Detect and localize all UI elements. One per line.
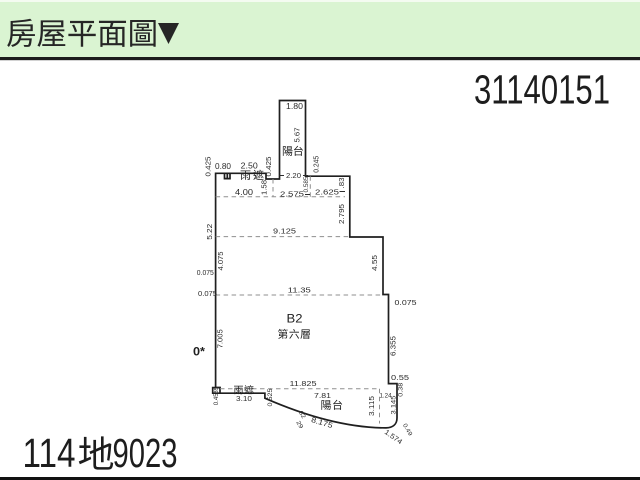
svg-text:114: 114: [23, 430, 76, 476]
svg-text:3.115: 3.115: [369, 396, 376, 416]
svg-text:31140151: 31140151: [474, 67, 610, 113]
svg-text:0.45: 0.45: [214, 393, 220, 406]
svg-text:2.795: 2.795: [339, 204, 346, 224]
svg-text:0.585: 0.585: [303, 176, 310, 192]
svg-text:3.10: 3.10: [236, 394, 252, 403]
svg-text:2.575: 2.575: [280, 190, 304, 199]
svg-text:29: 29: [294, 420, 304, 431]
svg-text:1.574: 1.574: [383, 429, 403, 446]
svg-text:35: 35: [214, 387, 220, 394]
svg-text:0.425: 0.425: [266, 156, 273, 176]
svg-text:0*: 0*: [193, 347, 206, 359]
svg-text:8.175: 8.175: [310, 415, 334, 430]
svg-text:0.075: 0.075: [197, 270, 214, 277]
svg-text:0.425: 0.425: [206, 156, 213, 176]
svg-text:2.625: 2.625: [315, 187, 339, 196]
svg-text:11.825: 11.825: [290, 379, 317, 388]
svg-text:7.81: 7.81: [314, 391, 331, 400]
svg-text:0.245: 0.245: [313, 156, 320, 173]
svg-text:0.075: 0.075: [198, 291, 217, 298]
svg-text:1.80: 1.80: [286, 102, 304, 111]
svg-text:4.55: 4.55: [372, 255, 379, 271]
svg-text:0.55: 0.55: [391, 373, 409, 382]
svg-text:0.525: 0.525: [268, 388, 274, 407]
svg-text:0.075: 0.075: [395, 298, 417, 307]
svg-text:11.35: 11.35: [288, 286, 311, 295]
svg-text:4.075: 4.075: [218, 251, 225, 270]
svg-text:62: 62: [297, 410, 307, 421]
svg-text:6.355: 6.355: [390, 336, 397, 356]
svg-text:7.005: 7.005: [218, 329, 225, 348]
svg-text:1.58: 1.58: [261, 180, 268, 195]
svg-text:B2: B2: [287, 312, 303, 326]
svg-text:0.80: 0.80: [215, 162, 232, 171]
svg-text:5.22: 5.22: [207, 224, 214, 240]
svg-text:2.50: 2.50: [241, 161, 259, 170]
svg-text:9.125: 9.125: [273, 227, 296, 236]
svg-text:3.145: 3.145: [391, 395, 398, 414]
svg-text:2.20: 2.20: [286, 171, 301, 180]
svg-text:.83: .83: [339, 177, 346, 188]
svg-text:9023: 9023: [113, 430, 178, 476]
svg-text:5.67: 5.67: [295, 127, 302, 142]
svg-text:0.38: 0.38: [398, 382, 405, 396]
svg-text:4.00: 4.00: [235, 188, 254, 197]
svg-text:0.49: 0.49: [401, 423, 413, 438]
